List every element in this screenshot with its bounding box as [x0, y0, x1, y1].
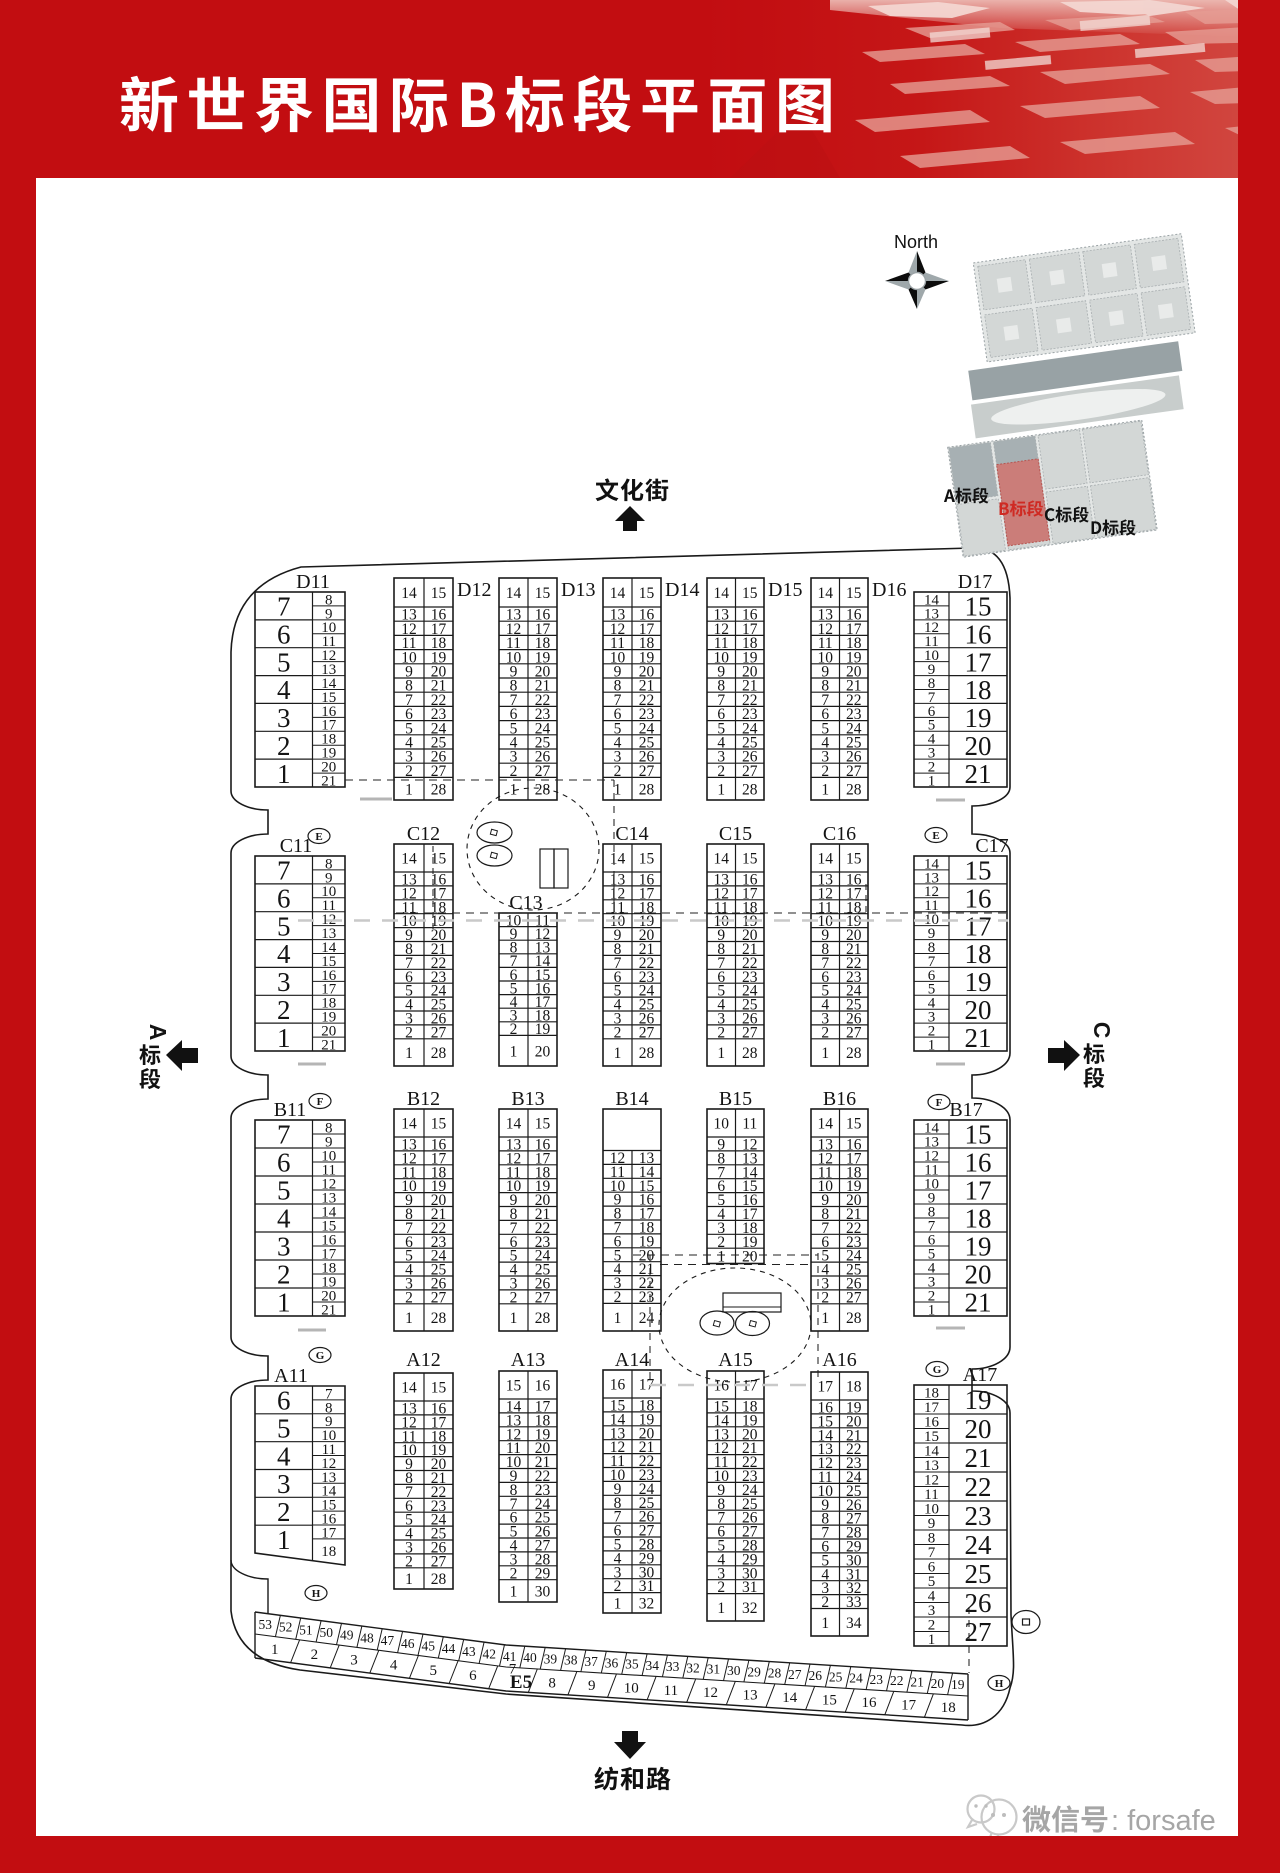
svg-text:19: 19	[965, 703, 992, 733]
svg-text:28: 28	[846, 781, 862, 798]
svg-text:5: 5	[277, 911, 291, 941]
svg-text:13: 13	[743, 1688, 758, 1704]
svg-text:D15: D15	[768, 579, 802, 601]
svg-text:15: 15	[846, 851, 862, 868]
svg-text:C: C	[1089, 1022, 1115, 1039]
svg-text:2: 2	[510, 1289, 518, 1306]
svg-text:2: 2	[614, 1024, 622, 1041]
svg-text:17: 17	[965, 1176, 992, 1206]
svg-text:21: 21	[321, 1302, 336, 1318]
svg-text:C17: C17	[975, 835, 1008, 857]
svg-text:15: 15	[431, 1380, 447, 1397]
svg-text:D16: D16	[872, 579, 906, 601]
svg-text:C14: C14	[615, 823, 648, 845]
svg-text:A11: A11	[274, 1365, 308, 1387]
svg-text:1: 1	[510, 1310, 518, 1327]
svg-text:1: 1	[717, 781, 725, 798]
svg-text:47: 47	[381, 1633, 395, 1648]
svg-text:21: 21	[965, 1443, 992, 1473]
svg-text:14: 14	[401, 1116, 417, 1133]
svg-text:34: 34	[846, 1615, 862, 1632]
svg-text:10: 10	[713, 1116, 729, 1133]
svg-text:4: 4	[277, 675, 291, 705]
svg-text:14: 14	[610, 851, 626, 868]
svg-text:28: 28	[431, 1310, 447, 1327]
svg-text:15: 15	[742, 851, 758, 868]
svg-text:12: 12	[703, 1685, 718, 1701]
svg-text:B16: B16	[823, 1088, 856, 1110]
svg-text:20: 20	[965, 731, 992, 761]
svg-text:28: 28	[535, 1310, 551, 1327]
svg-text:27: 27	[742, 763, 758, 780]
svg-text:2: 2	[614, 1578, 622, 1595]
svg-text:1: 1	[614, 781, 622, 798]
svg-text:2: 2	[821, 1289, 829, 1306]
svg-text:19: 19	[951, 1677, 965, 1692]
svg-text:2: 2	[821, 763, 829, 780]
svg-text:17: 17	[817, 1379, 833, 1396]
svg-text:1: 1	[277, 759, 291, 789]
svg-text:18: 18	[965, 939, 992, 969]
svg-text:33: 33	[666, 1659, 680, 1674]
svg-text:27: 27	[846, 1024, 862, 1041]
svg-text:5: 5	[277, 647, 291, 677]
svg-text:6: 6	[277, 884, 291, 914]
svg-text:6: 6	[277, 1148, 291, 1178]
svg-text:10: 10	[624, 1680, 639, 1696]
svg-text:1: 1	[271, 1642, 279, 1658]
svg-text:7: 7	[277, 856, 291, 886]
svg-text:3: 3	[277, 1469, 291, 1499]
svg-text:21: 21	[965, 759, 992, 789]
svg-text:46: 46	[401, 1636, 415, 1651]
svg-text:25: 25	[965, 1559, 992, 1589]
svg-text:39: 39	[544, 1652, 558, 1667]
svg-text:16: 16	[965, 1148, 992, 1178]
svg-text:18: 18	[965, 1204, 992, 1234]
svg-text:F: F	[317, 1096, 324, 1108]
svg-text:D17: D17	[958, 571, 992, 593]
svg-text:1: 1	[717, 1045, 725, 1062]
svg-text:G: G	[933, 1364, 942, 1376]
svg-text:28: 28	[431, 1571, 447, 1588]
svg-text:1: 1	[510, 1583, 518, 1600]
svg-text:14: 14	[401, 1380, 417, 1397]
svg-text:C16: C16	[823, 823, 856, 845]
svg-text:2: 2	[821, 1024, 829, 1041]
svg-text:1: 1	[821, 1045, 829, 1062]
svg-text:D14: D14	[665, 579, 699, 601]
svg-text:16: 16	[535, 1378, 551, 1395]
svg-text:1: 1	[277, 1023, 291, 1053]
svg-text:15: 15	[822, 1693, 837, 1709]
svg-text:3: 3	[277, 967, 291, 997]
svg-text:24: 24	[965, 1530, 993, 1560]
svg-text:53: 53	[258, 1617, 272, 1632]
svg-text:15: 15	[742, 585, 758, 602]
svg-text:28: 28	[639, 781, 655, 798]
svg-text:27: 27	[846, 1289, 862, 1306]
svg-text:15: 15	[846, 585, 862, 602]
svg-text:14: 14	[817, 585, 833, 602]
svg-text:North: North	[894, 232, 938, 252]
svg-text:43: 43	[462, 1644, 476, 1659]
svg-text:11: 11	[664, 1683, 678, 1699]
svg-text:G: G	[316, 1350, 325, 1362]
svg-text:17: 17	[965, 911, 992, 941]
svg-text:E: E	[932, 830, 939, 842]
svg-text:42: 42	[483, 1647, 497, 1662]
svg-text:28: 28	[768, 1666, 782, 1681]
svg-text:4: 4	[277, 939, 291, 969]
svg-text:20: 20	[742, 1248, 758, 1265]
svg-text:28: 28	[639, 1045, 655, 1062]
svg-text:2: 2	[277, 1497, 291, 1527]
svg-text:15: 15	[431, 1116, 447, 1133]
svg-text:A13: A13	[511, 1349, 545, 1371]
svg-text:1: 1	[614, 1045, 622, 1062]
svg-text:37: 37	[584, 1654, 598, 1669]
svg-text:17: 17	[965, 647, 992, 677]
svg-text:1: 1	[821, 1310, 829, 1327]
svg-text:30: 30	[535, 1583, 551, 1600]
svg-text:27: 27	[742, 1024, 758, 1041]
svg-text:27: 27	[639, 1024, 655, 1041]
svg-text:4: 4	[277, 1441, 291, 1471]
svg-text:2: 2	[614, 763, 622, 780]
svg-text:18: 18	[941, 1700, 956, 1716]
svg-text:18: 18	[965, 675, 992, 705]
svg-text:F: F	[936, 1097, 943, 1109]
svg-text:33: 33	[846, 1594, 862, 1611]
svg-text:25: 25	[829, 1669, 843, 1684]
svg-text:28: 28	[431, 781, 447, 798]
svg-text:27: 27	[788, 1667, 802, 1682]
svg-text:A12: A12	[406, 1349, 440, 1371]
svg-text:21: 21	[321, 1037, 336, 1053]
svg-text:32: 32	[742, 1600, 758, 1617]
svg-text:14: 14	[782, 1690, 798, 1706]
svg-text:28: 28	[742, 781, 758, 798]
svg-text:B11: B11	[274, 1099, 307, 1121]
svg-text:21: 21	[321, 773, 336, 789]
svg-text:14: 14	[713, 585, 729, 602]
svg-text:19: 19	[965, 1385, 992, 1415]
svg-text:2: 2	[821, 1594, 829, 1611]
svg-text:2: 2	[405, 1024, 413, 1041]
svg-text:31: 31	[639, 1578, 655, 1595]
svg-text:19: 19	[965, 1232, 992, 1262]
svg-text:27: 27	[431, 1024, 447, 1041]
svg-text:14: 14	[401, 851, 417, 868]
svg-text:15: 15	[965, 856, 992, 886]
svg-text:1: 1	[277, 1525, 291, 1555]
svg-text:2: 2	[510, 763, 518, 780]
svg-text:24: 24	[639, 1310, 655, 1327]
svg-text:C11: C11	[280, 835, 313, 857]
svg-text:3: 3	[277, 1232, 291, 1262]
svg-text:2: 2	[510, 1565, 518, 1582]
svg-text:3: 3	[277, 703, 291, 733]
svg-text:1: 1	[614, 1310, 622, 1327]
svg-text:2: 2	[405, 1553, 413, 1570]
svg-text:C13: C13	[509, 892, 542, 914]
svg-text:44: 44	[442, 1641, 456, 1656]
svg-text:20: 20	[931, 1676, 945, 1691]
svg-text:22: 22	[965, 1472, 992, 1502]
svg-text:B15: B15	[719, 1088, 752, 1110]
svg-text:27: 27	[639, 763, 655, 780]
svg-text:35: 35	[625, 1657, 639, 1672]
svg-text:15: 15	[846, 1116, 862, 1133]
svg-text:6: 6	[277, 620, 291, 650]
svg-text:14: 14	[713, 851, 729, 868]
svg-text:26: 26	[808, 1668, 822, 1683]
svg-text:2: 2	[405, 763, 413, 780]
svg-text:15: 15	[535, 1116, 551, 1133]
svg-text:2: 2	[717, 763, 725, 780]
svg-text:23: 23	[965, 1501, 992, 1531]
svg-text:27: 27	[846, 763, 862, 780]
svg-text:6: 6	[277, 1386, 291, 1416]
svg-text:40: 40	[523, 1650, 537, 1665]
svg-text:15: 15	[965, 592, 992, 622]
svg-text:36: 36	[605, 1655, 619, 1670]
svg-text:7: 7	[277, 592, 291, 622]
svg-text:15: 15	[506, 1378, 522, 1395]
svg-text:21: 21	[965, 1023, 992, 1053]
svg-text:15: 15	[639, 851, 655, 868]
svg-text:31: 31	[707, 1662, 721, 1677]
svg-text:17: 17	[901, 1698, 917, 1714]
svg-text:28: 28	[742, 1045, 758, 1062]
svg-text:D13: D13	[561, 579, 595, 601]
svg-text:D12: D12	[457, 579, 491, 601]
svg-text:2: 2	[311, 1647, 319, 1663]
svg-text:32: 32	[639, 1595, 655, 1612]
svg-text:21: 21	[965, 1288, 992, 1318]
svg-text:20: 20	[535, 1043, 551, 1060]
svg-text:5: 5	[277, 1176, 291, 1206]
svg-text:1: 1	[717, 1600, 725, 1617]
svg-text:14: 14	[610, 585, 626, 602]
svg-text:1: 1	[510, 1043, 518, 1060]
svg-text:23: 23	[870, 1672, 884, 1687]
svg-text:27: 27	[535, 763, 551, 780]
svg-text:18: 18	[846, 1379, 862, 1396]
svg-text:3: 3	[350, 1652, 358, 1668]
svg-text:30: 30	[727, 1663, 741, 1678]
svg-text:15: 15	[965, 1120, 992, 1150]
svg-text:7: 7	[277, 1120, 291, 1150]
svg-text:14: 14	[817, 1116, 833, 1133]
svg-text:27: 27	[535, 1289, 551, 1306]
svg-text:A14: A14	[615, 1349, 649, 1371]
svg-text:31: 31	[742, 1579, 758, 1596]
svg-text:2: 2	[405, 1289, 413, 1306]
svg-text:1: 1	[717, 1248, 725, 1265]
svg-text:C12: C12	[407, 823, 440, 845]
svg-text:D11: D11	[296, 571, 330, 593]
svg-text:20: 20	[965, 1414, 992, 1444]
svg-text:C15: C15	[719, 823, 752, 845]
svg-text:27: 27	[431, 763, 447, 780]
svg-text:1: 1	[928, 1302, 936, 1318]
svg-text:E: E	[315, 831, 322, 843]
svg-text:6: 6	[469, 1668, 477, 1684]
svg-text:16: 16	[965, 620, 992, 650]
svg-text:51: 51	[299, 1622, 313, 1637]
svg-text:15: 15	[535, 585, 551, 602]
svg-text:49: 49	[340, 1628, 354, 1643]
svg-text:2: 2	[717, 1579, 725, 1596]
svg-text:28: 28	[846, 1310, 862, 1327]
svg-text:2: 2	[717, 1024, 725, 1041]
svg-text:27: 27	[431, 1553, 447, 1570]
svg-text:16: 16	[965, 884, 992, 914]
svg-text:B17: B17	[949, 1099, 982, 1121]
svg-text:14: 14	[506, 1116, 522, 1133]
svg-text:50: 50	[320, 1625, 334, 1640]
svg-text:27: 27	[431, 1289, 447, 1306]
svg-text:1: 1	[277, 1288, 291, 1318]
svg-text:32: 32	[686, 1660, 700, 1675]
svg-text:A16: A16	[822, 1349, 856, 1371]
svg-text:9: 9	[588, 1678, 596, 1694]
svg-text:34: 34	[645, 1658, 659, 1673]
svg-text:1: 1	[928, 773, 936, 789]
svg-text:A: A	[145, 1024, 171, 1041]
svg-text:1: 1	[928, 1037, 936, 1053]
svg-text:1: 1	[821, 1615, 829, 1632]
svg-text:28: 28	[431, 1045, 447, 1062]
svg-text:H: H	[312, 1588, 321, 1600]
svg-text:16: 16	[862, 1695, 878, 1711]
svg-text:E5: E5	[510, 1672, 532, 1693]
svg-text:21: 21	[910, 1675, 924, 1690]
svg-text:B12: B12	[407, 1088, 440, 1110]
svg-text:20: 20	[965, 1260, 992, 1290]
svg-text:2: 2	[277, 731, 291, 761]
svg-text:1: 1	[614, 1595, 622, 1612]
svg-text:45: 45	[421, 1638, 435, 1653]
svg-text:24: 24	[849, 1671, 863, 1686]
svg-text:: forsafe: : forsafe	[1111, 1805, 1216, 1837]
svg-text:A15: A15	[718, 1349, 752, 1371]
svg-text:1: 1	[405, 1571, 413, 1588]
svg-text:8: 8	[548, 1675, 556, 1691]
svg-text:48: 48	[360, 1630, 374, 1645]
svg-text:5: 5	[429, 1663, 437, 1679]
svg-text:1: 1	[928, 1632, 936, 1648]
svg-text:38: 38	[564, 1653, 578, 1668]
svg-text:11: 11	[742, 1116, 757, 1133]
svg-text:2: 2	[277, 1260, 291, 1290]
svg-text:18: 18	[321, 1544, 336, 1560]
svg-text:15: 15	[639, 585, 655, 602]
svg-text:29: 29	[535, 1565, 551, 1582]
svg-text:5: 5	[277, 1414, 291, 1444]
svg-text:1: 1	[405, 1310, 413, 1327]
svg-text:B13: B13	[511, 1088, 544, 1110]
svg-text:H: H	[995, 1678, 1004, 1690]
svg-text:A17: A17	[963, 1364, 997, 1386]
svg-text:52: 52	[279, 1620, 293, 1635]
svg-text:14: 14	[506, 585, 522, 602]
svg-text:28: 28	[846, 1045, 862, 1062]
svg-text:14: 14	[401, 585, 417, 602]
svg-text:4: 4	[277, 1204, 291, 1234]
svg-text:16: 16	[610, 1377, 626, 1394]
svg-text:19: 19	[965, 967, 992, 997]
svg-text:22: 22	[890, 1673, 904, 1688]
svg-text:15: 15	[431, 585, 447, 602]
svg-text:B14: B14	[615, 1088, 648, 1110]
svg-text:14: 14	[817, 851, 833, 868]
svg-text:4: 4	[390, 1658, 398, 1674]
svg-text:1: 1	[405, 1045, 413, 1062]
svg-text:2: 2	[277, 995, 291, 1025]
svg-text:29: 29	[747, 1664, 761, 1679]
svg-text:1: 1	[405, 781, 413, 798]
svg-text:20: 20	[965, 995, 992, 1025]
svg-text:1: 1	[821, 781, 829, 798]
